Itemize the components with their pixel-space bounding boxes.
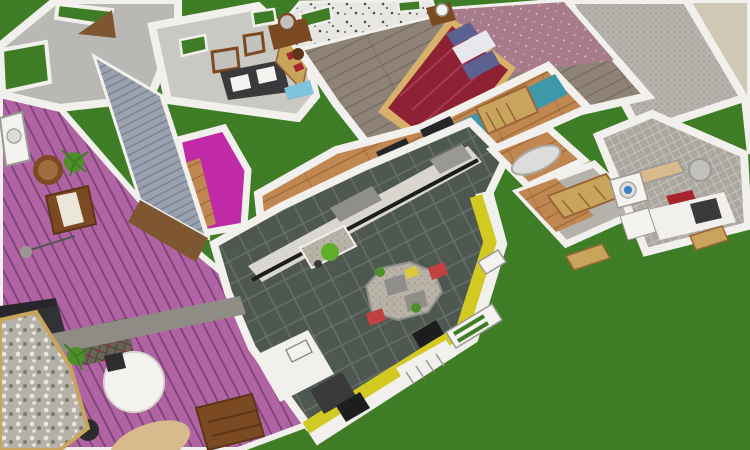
floorplan-3d-viewport[interactable] (0, 0, 750, 450)
vanity-mirror (212, 48, 239, 72)
skylight-window (2, 42, 50, 92)
floor-lamp-shade (20, 246, 32, 258)
bathroom-window (252, 9, 276, 26)
counter-item (314, 260, 322, 268)
appliance-door (7, 129, 21, 143)
island-plant (375, 267, 385, 277)
bedside-lamp (436, 4, 448, 16)
island-plant (411, 303, 421, 313)
floorplan-render (0, 0, 750, 450)
washer-door-glass (624, 186, 632, 194)
stool (292, 48, 304, 60)
round-mirror (689, 159, 711, 181)
bedroom-window (398, 0, 421, 12)
green-apple (321, 243, 339, 261)
ottoman-top (38, 160, 58, 180)
dressing-mirror (279, 14, 295, 30)
vanity-mirror (244, 33, 264, 55)
